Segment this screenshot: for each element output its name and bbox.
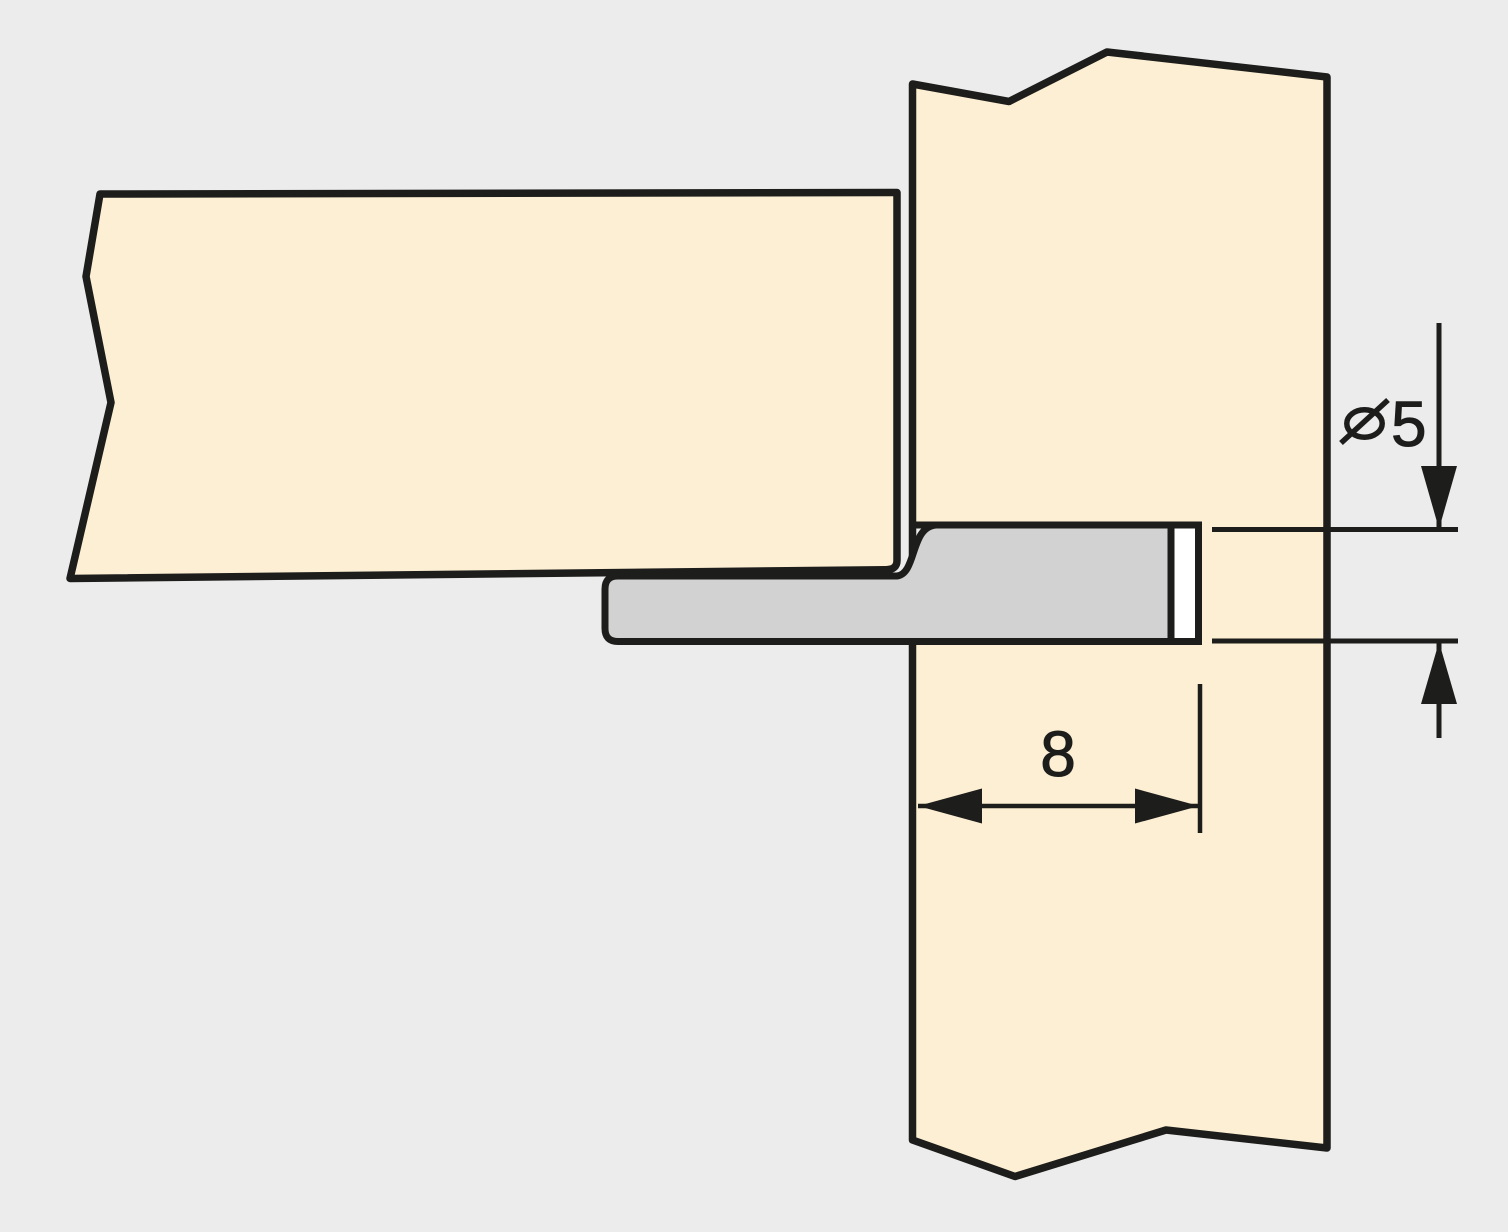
svg-text:8: 8 <box>1040 718 1076 790</box>
svg-text:5: 5 <box>1391 388 1427 460</box>
